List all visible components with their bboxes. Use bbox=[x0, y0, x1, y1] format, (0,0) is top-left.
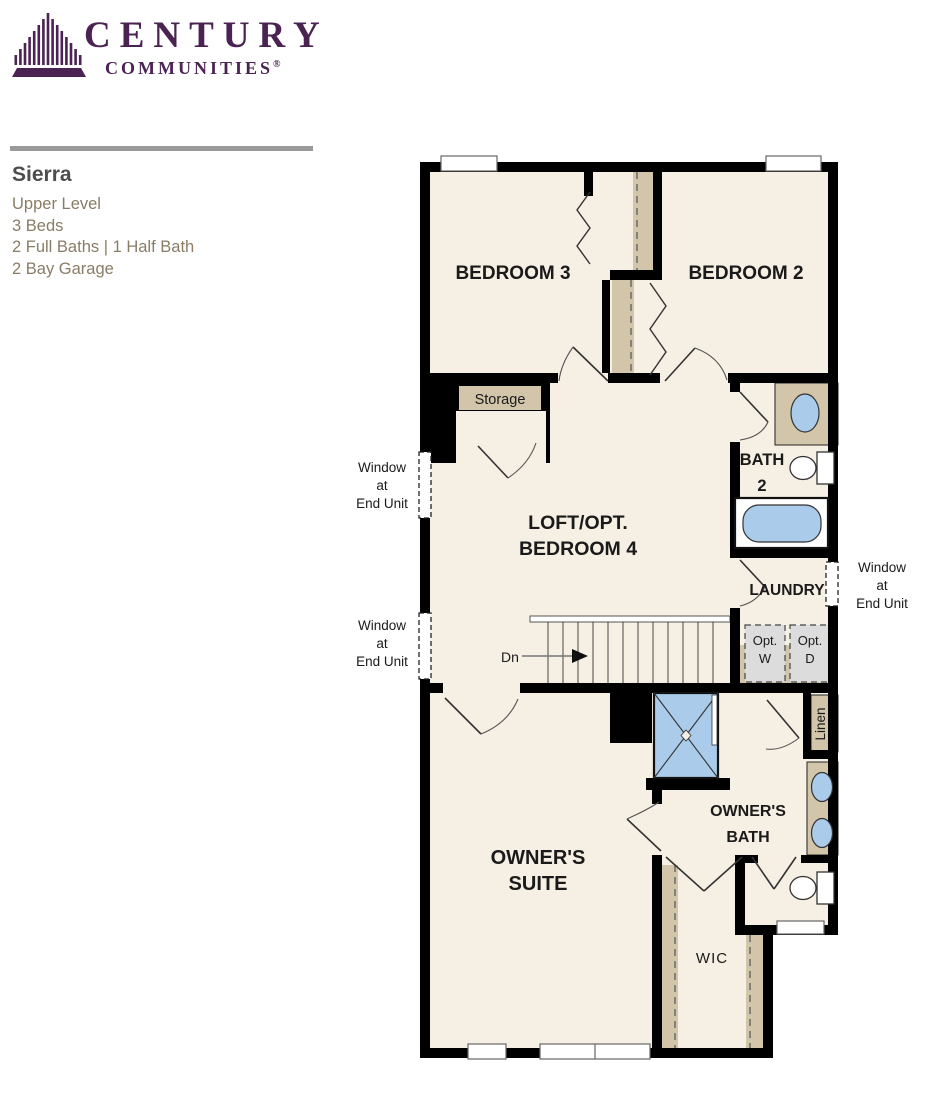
brand-name: CENTURY bbox=[84, 14, 329, 57]
owners-suite-label-1: OWNER'S bbox=[491, 847, 586, 869]
end-unit-window bbox=[419, 452, 431, 518]
plan-name: Sierra bbox=[12, 163, 72, 187]
window bbox=[441, 156, 497, 171]
bath2-label-1: BATH bbox=[740, 451, 785, 469]
window bbox=[766, 156, 821, 171]
svg-text:Window: Window bbox=[358, 618, 406, 633]
window-end-unit-label: Window at End Unit bbox=[856, 560, 908, 611]
opt-dryer-label1: Opt. bbox=[798, 633, 823, 648]
plan-baths: 2 Full Baths | 1 Half Bath bbox=[12, 237, 194, 259]
wic-shelf-right bbox=[746, 935, 763, 1048]
svg-text:Window: Window bbox=[358, 460, 406, 475]
wic-label: WIC bbox=[696, 950, 728, 967]
sink bbox=[812, 773, 833, 802]
plan-level: Upper Level bbox=[12, 194, 194, 216]
brand-header: CENTURY COMMUNITIES® bbox=[12, 6, 332, 96]
sink bbox=[791, 394, 819, 432]
century-logo-icon bbox=[12, 8, 86, 82]
end-unit-window bbox=[826, 562, 838, 606]
svg-text:at: at bbox=[876, 578, 888, 593]
svg-text:Window: Window bbox=[858, 560, 906, 575]
svg-text:End Unit: End Unit bbox=[856, 596, 908, 611]
window bbox=[777, 921, 824, 934]
owners-bath-label-2: BATH bbox=[726, 829, 769, 846]
loft-label-1: LOFT/OPT. bbox=[528, 512, 628, 534]
opt-dryer-label2: D bbox=[805, 651, 814, 666]
linen-label: Linen bbox=[813, 707, 828, 740]
owners-suite-label-2: SUITE bbox=[509, 873, 568, 895]
bath2-label-2: 2 bbox=[757, 477, 766, 495]
sink bbox=[812, 819, 833, 848]
stairs-down-label: Dn bbox=[501, 649, 519, 665]
storage-label: Storage bbox=[475, 392, 526, 408]
shower bbox=[654, 693, 718, 778]
plan-details: Upper Level 3 Beds 2 Full Baths | 1 Half… bbox=[12, 194, 194, 280]
svg-text:End Unit: End Unit bbox=[356, 654, 408, 669]
registered-mark: ® bbox=[273, 59, 280, 70]
bedroom2-label: BEDROOM 2 bbox=[688, 263, 803, 284]
end-unit-window bbox=[419, 613, 431, 679]
owners-bath-label-1: OWNER'S bbox=[710, 803, 786, 820]
bedroom3-closet bbox=[633, 172, 653, 270]
svg-text:at: at bbox=[376, 478, 388, 493]
brand-subname-text: COMMUNITIES bbox=[105, 58, 273, 78]
loft-label-2: BEDROOM 4 bbox=[519, 538, 637, 560]
window-end-unit-label: Window at End Unit bbox=[356, 460, 408, 511]
plan-garage: 2 Bay Garage bbox=[12, 259, 194, 281]
window-end-unit-label: Window at End Unit bbox=[356, 618, 408, 669]
opt-washer-label2: W bbox=[759, 651, 772, 666]
opt-washer-label1: Opt. bbox=[753, 633, 778, 648]
floor-plan: Dn Opt. W Opt. D bbox=[340, 150, 933, 1070]
svg-text:End Unit: End Unit bbox=[356, 496, 408, 511]
brand-subname: COMMUNITIES® bbox=[105, 58, 281, 79]
chase-block bbox=[610, 683, 652, 743]
shower-glass-door bbox=[712, 695, 717, 745]
bathtub bbox=[735, 498, 828, 548]
bedroom3-label: BEDROOM 3 bbox=[455, 263, 570, 284]
window bbox=[468, 1044, 506, 1059]
page: CENTURY COMMUNITIES® Sierra Upper Level … bbox=[0, 0, 933, 1102]
svg-text:at: at bbox=[376, 636, 388, 651]
plan-beds: 3 Beds bbox=[12, 216, 194, 238]
section-divider bbox=[10, 146, 313, 151]
laundry-label: LAUNDRY bbox=[749, 582, 825, 599]
stair-handrail bbox=[530, 616, 730, 622]
